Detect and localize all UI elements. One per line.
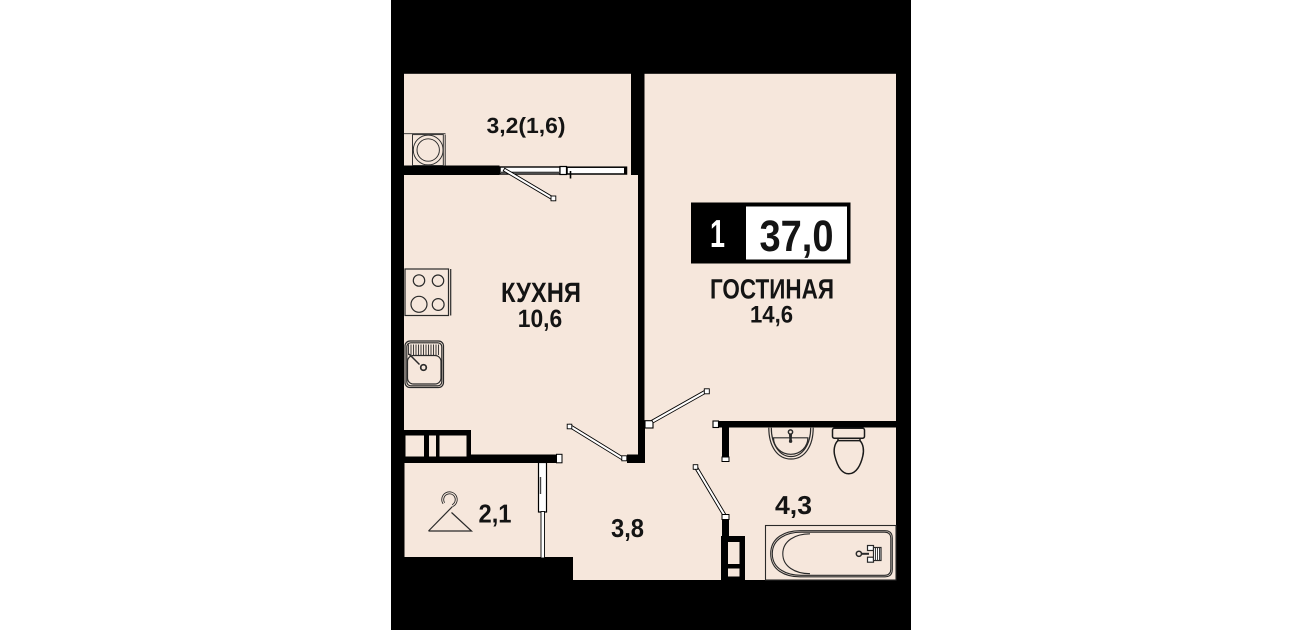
svg-text:2,1: 2,1 (479, 499, 512, 529)
svg-text:1: 1 (710, 213, 725, 256)
svg-text:14,6: 14,6 (750, 302, 793, 329)
svg-text:КУХНЯ: КУХНЯ (501, 277, 581, 308)
svg-text:3,8: 3,8 (611, 513, 644, 543)
svg-text:37,0: 37,0 (760, 212, 834, 261)
svg-text:10,6: 10,6 (518, 305, 563, 333)
svg-text:4,3: 4,3 (775, 490, 812, 520)
svg-text:ГОСТИНАЯ: ГОСТИНАЯ (710, 274, 834, 305)
svg-text:3,2(1,6): 3,2(1,6) (487, 113, 566, 138)
